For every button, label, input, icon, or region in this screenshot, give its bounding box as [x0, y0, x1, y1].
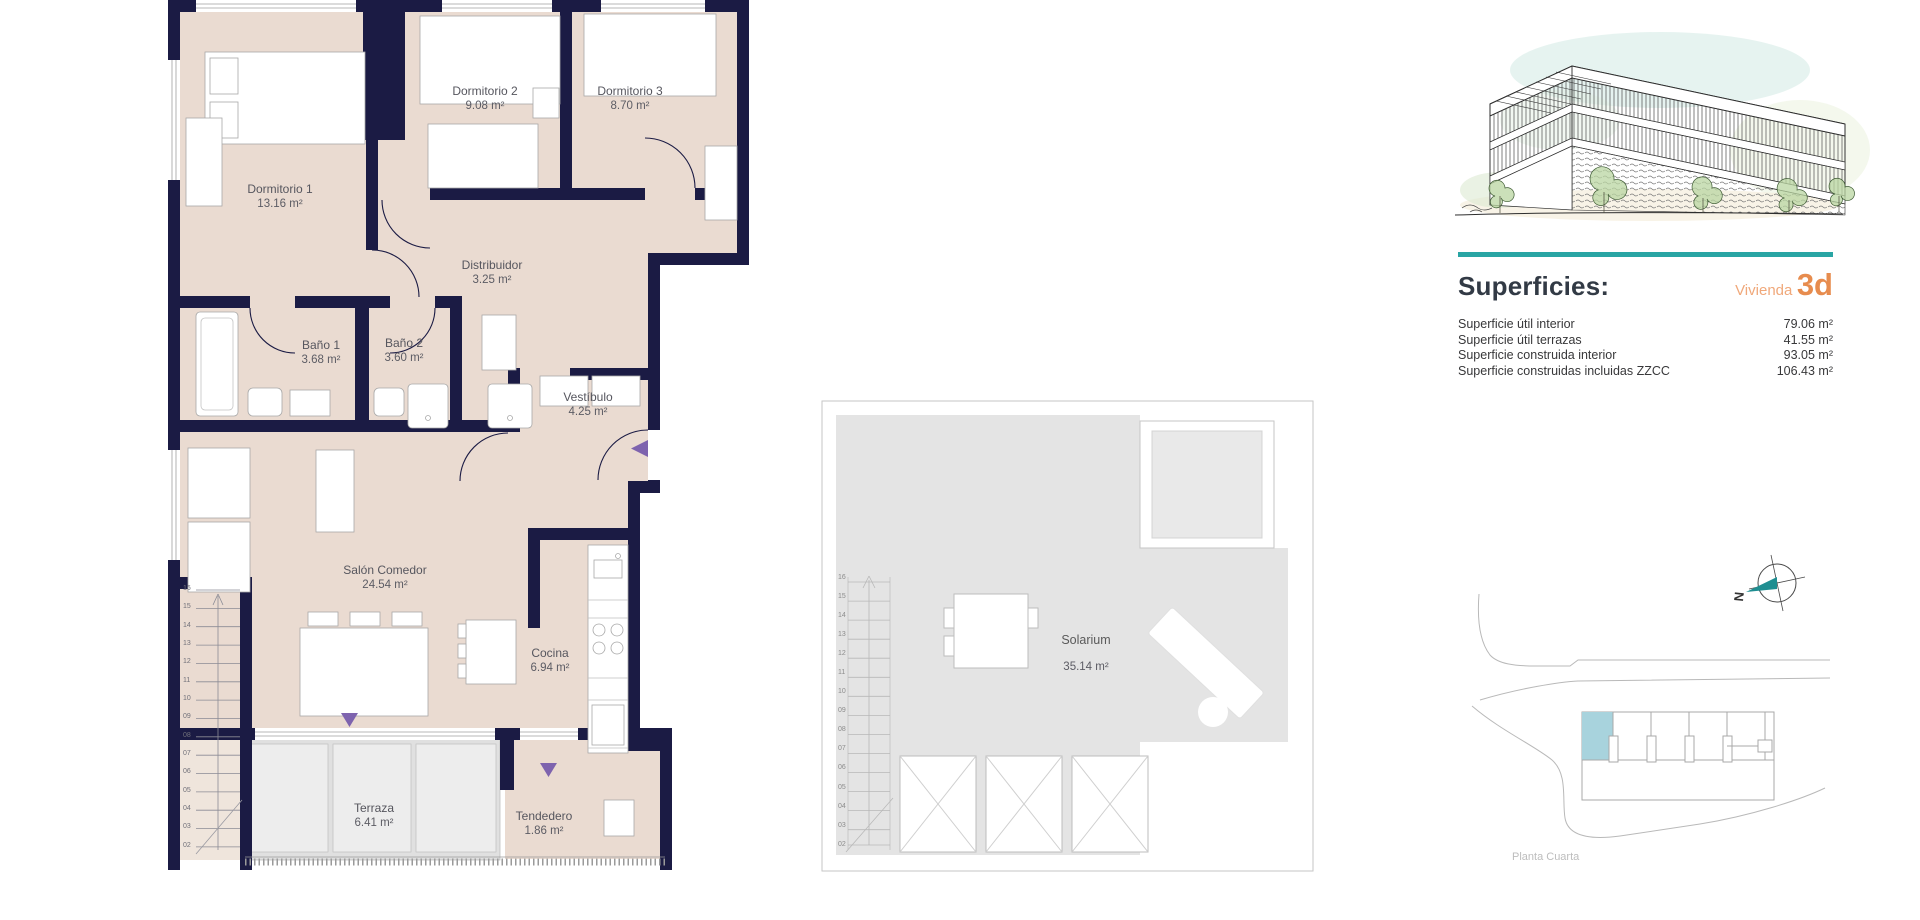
room-label-bano-1: Baño 1 3.68 m² — [302, 338, 341, 368]
stair-step-number: 06 — [838, 764, 846, 783]
surface-rows: Superficie útil interior 79.06 m² Superf… — [1458, 317, 1833, 379]
stair-step-number: 11 — [183, 677, 191, 695]
floorplan-drawing: N — [0, 0, 1920, 920]
stair-step-number: 11 — [838, 669, 846, 688]
teal-divider — [1458, 252, 1833, 257]
stair-step-number: 07 — [838, 745, 846, 764]
stair-step-number: 08 — [838, 726, 846, 745]
room-label-tendedero: Tendedero 1.86 m² — [516, 809, 573, 839]
stair-step-number: 02 — [183, 842, 191, 860]
unit-id: 3d — [1797, 267, 1833, 302]
stair-step-number: 02 — [838, 841, 846, 860]
room-label-dormitorio-1: Dormitorio 1 13.16 m² — [247, 182, 312, 212]
terrace-area — [245, 739, 500, 860]
stair-step-number: 04 — [183, 805, 191, 823]
stair-step-number: 12 — [183, 658, 191, 676]
compass-icon: N — [1731, 555, 1805, 611]
skylight-boxes — [900, 756, 1148, 852]
stair-step-number: 09 — [183, 713, 191, 731]
room-label-terraza: Terraza 6.41 m² — [354, 801, 394, 831]
room-label-dormitorio-3: Dormitorio 3 8.70 m² — [597, 84, 662, 114]
room-label-salon-comedor: Salón Comedor 24.54 m² — [343, 563, 426, 593]
solarium-table — [944, 594, 1038, 668]
compass-north-label: N — [1731, 591, 1747, 602]
surface-row: Superficie útil terrazas 41.55 m² — [1458, 333, 1833, 349]
apartment-stair-numbers: 161514131211100908070605040302 — [183, 585, 191, 860]
unit-badge: Vivienda 3d — [1735, 267, 1833, 303]
surface-row: Superficie útil interior 79.06 m² — [1458, 317, 1833, 333]
solarium-stair-numbers: 161514131211100908070605040302 — [838, 574, 846, 860]
solarium-ball — [1198, 697, 1228, 727]
building-sketch-illustration — [1455, 32, 1870, 221]
room-label-bano-2: Baño 2 3.60 m² — [385, 336, 424, 366]
stair-step-number: 03 — [183, 823, 191, 841]
stair-step-number: 14 — [183, 622, 191, 640]
room-label-vestibulo: Vestíbulo 4.25 m² — [563, 390, 612, 420]
stair-step-number: 16 — [838, 574, 846, 593]
stair-step-number: 10 — [838, 688, 846, 707]
stair-step-number: 08 — [183, 732, 191, 750]
stair-step-number: 03 — [838, 822, 846, 841]
stair-step-number: 16 — [183, 585, 191, 603]
highlighted-unit — [1582, 712, 1613, 760]
stair-step-number: 12 — [838, 650, 846, 669]
surfaces-panel: Superficies: Vivienda 3d Superficie útil… — [1458, 252, 1833, 379]
stair-step-number: 13 — [183, 640, 191, 658]
room-label-dormitorio-2: Dormitorio 2 9.08 m² — [452, 84, 517, 114]
room-label-cocina: Cocina 6.94 m² — [531, 646, 570, 676]
unit-label: Vivienda — [1735, 282, 1792, 299]
panel-title: Superficies: — [1458, 271, 1609, 302]
stair-step-number: 13 — [838, 631, 846, 650]
site-plan: N — [1472, 555, 1830, 837]
stair-step-number: 15 — [838, 593, 846, 612]
site-plan-caption: Planta Cuarta — [1512, 851, 1579, 863]
stair-step-number: 10 — [183, 695, 191, 713]
floorplan-sheet: N Dormitorio 1 13.16 m² Dormitorio 2 9.0… — [0, 0, 1920, 920]
room-label-solarium: Solarium 35.14 m² — [1061, 633, 1110, 675]
stair-step-number: 05 — [838, 784, 846, 803]
surface-row: Superficie construida interior 93.05 m² — [1458, 348, 1833, 364]
stair-step-number: 15 — [183, 603, 191, 621]
stair-step-number: 09 — [838, 707, 846, 726]
stair-step-number: 05 — [183, 787, 191, 805]
stair-step-number: 06 — [183, 768, 191, 786]
apartment-floorplan — [168, 0, 749, 870]
surface-row: Superficie construidas incluidas ZZCC 10… — [1458, 364, 1833, 380]
stair-step-number: 14 — [838, 612, 846, 631]
stair-step-number: 07 — [183, 750, 191, 768]
room-label-distribuidor: Distribuidor 3.25 m² — [462, 258, 523, 288]
stair-step-number: 04 — [838, 803, 846, 822]
